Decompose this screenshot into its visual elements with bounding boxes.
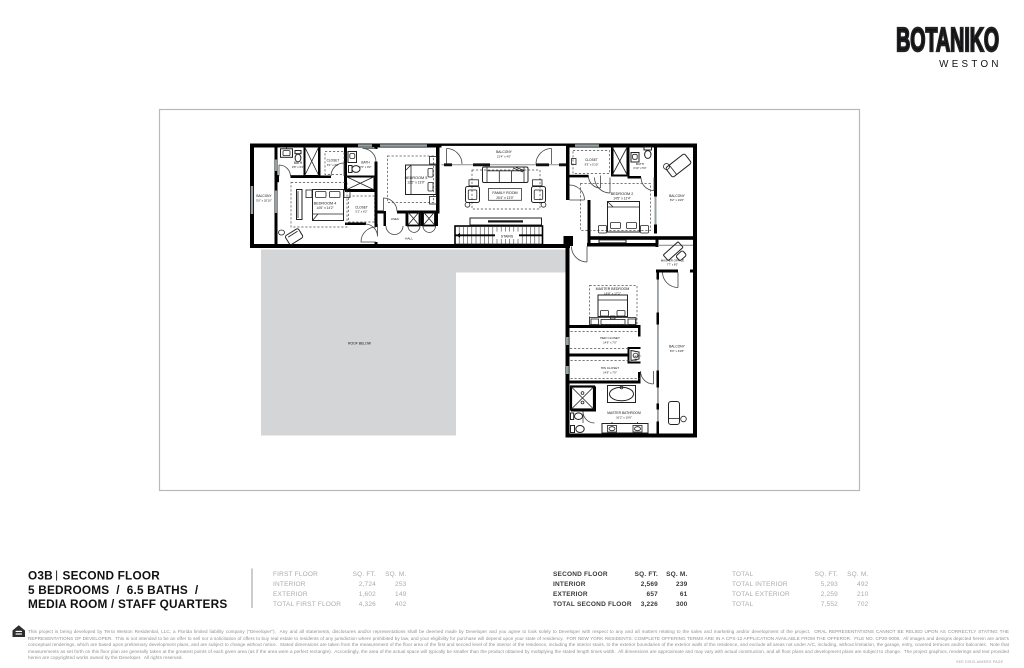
svg-text:14'5" x 12'4": 14'5" x 12'4" xyxy=(613,196,630,200)
svg-text:INTERIOR: INTERIOR xyxy=(273,581,306,588)
svg-text:MEDIA ROOM / STAFF QUARTERS: MEDIA ROOM / STAFF QUARTERS xyxy=(28,597,227,611)
svg-text:1,602: 1,602 xyxy=(359,591,376,598)
svg-text:FIRST FLOOR: FIRST FLOOR xyxy=(273,571,318,578)
svg-text:SQ. M.: SQ. M. xyxy=(385,571,406,578)
svg-text:2,259: 2,259 xyxy=(821,591,838,598)
svg-text:5'1" x 6'2": 5'1" x 6'2" xyxy=(355,210,367,214)
svg-text:9'3" x 5'10": 9'3" x 5'10" xyxy=(585,162,599,166)
svg-text:492: 492 xyxy=(857,581,869,588)
svg-text:BEDROOM 5: BEDROOM 5 xyxy=(405,176,428,180)
svg-text:TOTAL EXTERIOR: TOTAL EXTERIOR xyxy=(732,591,790,598)
svg-text:253: 253 xyxy=(395,581,407,588)
svg-text:SECOND FLOOR: SECOND FLOOR xyxy=(553,571,608,578)
svg-text:16'2" x 10'6": 16'2" x 10'6" xyxy=(616,415,632,419)
svg-text:INTERIOR: INTERIOR xyxy=(553,581,586,588)
svg-text:VANITY: VANITY xyxy=(634,355,642,358)
svg-text:STAIRS: STAIRS xyxy=(501,234,514,238)
svg-text:BOTANIKO: BOTANIKO xyxy=(896,20,999,58)
svg-text:5,293: 5,293 xyxy=(821,581,838,588)
svg-text:TOTAL FIRST FLOOR: TOTAL FIRST FLOOR xyxy=(273,601,341,608)
svg-text:61: 61 xyxy=(680,591,688,598)
svg-text:14'6" x 14'2": 14'6" x 14'2" xyxy=(316,206,333,210)
svg-text:239: 239 xyxy=(676,581,688,588)
svg-text:6'5" x 9'2": 6'5" x 9'2" xyxy=(359,165,371,169)
svg-text:14'6" x 7'0": 14'6" x 7'0" xyxy=(603,370,617,374)
svg-text:BEDROOM 2: BEDROOM 2 xyxy=(611,192,634,196)
svg-text:BALCONY: BALCONY xyxy=(669,345,686,349)
svg-text:TOTAL: TOTAL xyxy=(732,571,754,578)
svg-text:8'3" x 43'8": 8'3" x 43'8" xyxy=(670,349,684,353)
svg-text:SQ. FT.: SQ. FT. xyxy=(635,571,658,578)
svg-text:BATH: BATH xyxy=(636,162,644,166)
svg-text:SQ. FT.: SQ. FT. xyxy=(815,571,838,578)
svg-text:6'10" x 5'0": 6'10" x 5'0" xyxy=(633,166,646,170)
svg-text:BALCONY: BALCONY xyxy=(496,150,513,154)
svg-text:WESTON: WESTON xyxy=(939,59,1002,70)
svg-text:BALCONY: BALCONY xyxy=(256,194,272,198)
svg-text:300: 300 xyxy=(676,601,688,608)
svg-text:2,569: 2,569 xyxy=(641,581,658,588)
svg-text:SECOND FLOOR: SECOND FLOOR xyxy=(63,569,161,583)
svg-text:SQ. M.: SQ. M. xyxy=(666,571,687,578)
svg-text:ROOF BELOW: ROOF BELOW xyxy=(348,342,372,346)
svg-text:SQ. FT.: SQ. FT. xyxy=(353,571,376,578)
svg-text:5 BEDROOMS / 6.5 BATHS /: 5 BEDROOMS / 6.5 BATHS / xyxy=(28,583,199,597)
svg-text:5'1" x 6'2": 5'1" x 6'2" xyxy=(327,163,339,167)
svg-text:BEDROOM 4: BEDROOM 4 xyxy=(314,202,337,206)
svg-text:26'4" x 13'0": 26'4" x 13'0" xyxy=(496,196,513,200)
svg-text:402: 402 xyxy=(395,601,407,608)
svg-text:HALL: HALL xyxy=(405,236,413,240)
svg-text:3,226: 3,226 xyxy=(641,601,658,608)
svg-text:7,552: 7,552 xyxy=(821,601,838,608)
svg-text:FAMILY ROOM: FAMILY ROOM xyxy=(492,191,517,195)
svg-text:BALCONY: BALCONY xyxy=(669,194,686,198)
svg-text:EXTERIOR: EXTERIOR xyxy=(553,591,588,598)
svg-text:5'0" x 20'10": 5'0" x 20'10" xyxy=(256,198,272,202)
svg-text:SQ. M.: SQ. M. xyxy=(847,571,868,578)
svg-text:2,724: 2,724 xyxy=(359,581,376,588)
svg-text:4,326: 4,326 xyxy=(359,601,376,608)
svg-text:657: 657 xyxy=(647,591,659,598)
svg-text:7'7" x 8'0": 7'7" x 8'0" xyxy=(667,263,678,267)
svg-text:210: 210 xyxy=(857,591,869,598)
svg-text:702: 702 xyxy=(857,601,869,608)
svg-text:O3B: O3B xyxy=(28,569,53,583)
svg-text:TOTAL INTERIOR: TOTAL INTERIOR xyxy=(732,581,788,588)
svg-text:TOTAL: TOTAL xyxy=(732,601,754,608)
svg-text:8'2" x 19'0": 8'2" x 19'0" xyxy=(670,198,684,202)
svg-text:12'2" x 13'0": 12'2" x 13'0" xyxy=(407,181,424,185)
svg-text:149: 149 xyxy=(395,591,407,598)
svg-text:9'8" x 6'2": 9'8" x 6'2" xyxy=(292,165,304,169)
svg-text:21'4" x 4'0": 21'4" x 4'0" xyxy=(497,155,511,159)
svg-text:TOTAL SECOND FLOOR: TOTAL SECOND FLOOR xyxy=(553,601,632,608)
svg-text:LINEN: LINEN xyxy=(391,217,399,221)
svg-text:14'6" x 7'0": 14'6" x 7'0" xyxy=(603,340,617,344)
svg-text:EXTERIOR: EXTERIOR xyxy=(273,591,308,598)
